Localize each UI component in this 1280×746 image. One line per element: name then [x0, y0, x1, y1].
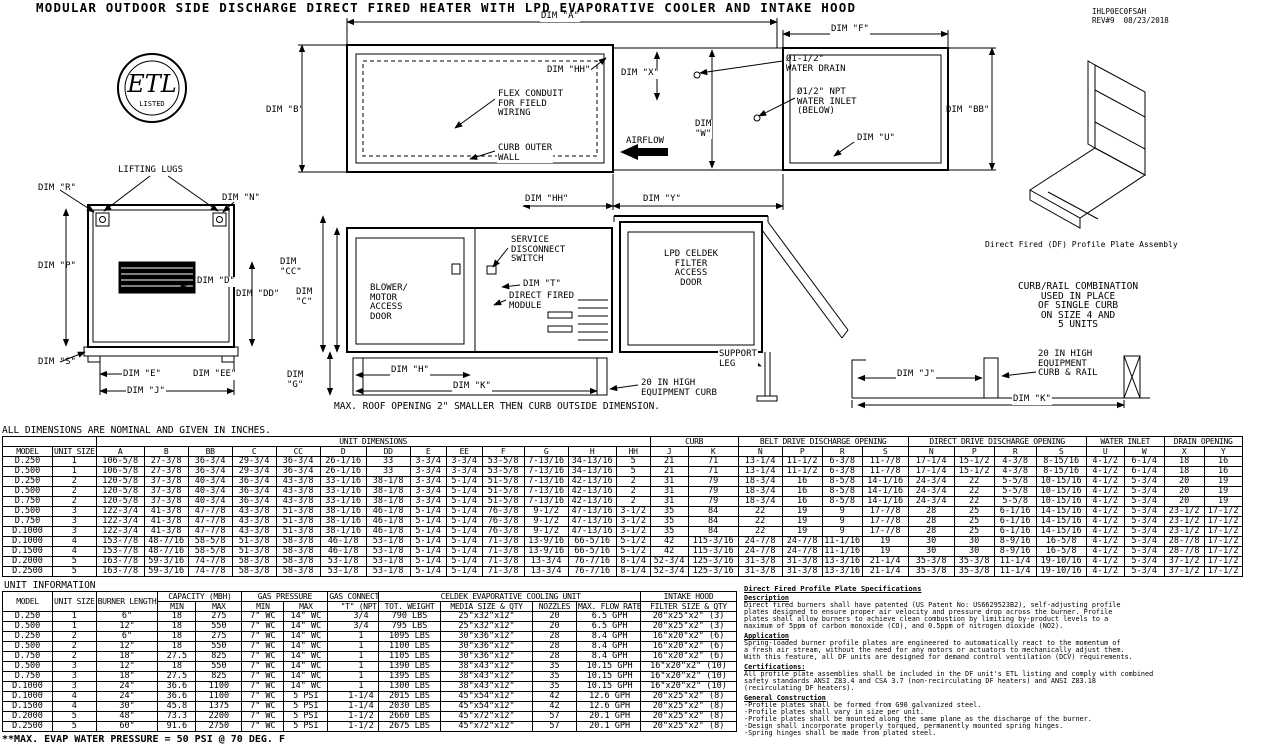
table-row: D.750318"27.58257" WC14" WC1 — [3, 672, 395, 682]
dim-j-label-right: DIM "J" — [896, 370, 936, 380]
table-row: 2660 LBS45"x72"x12"5720.1 GPH — [379, 712, 643, 722]
column-header: C — [232, 447, 276, 457]
column-header: MAX. FLOW RATE — [577, 602, 643, 612]
drawing-sheet: MODULAR OUTDOOR SIDE DISCHARGE DIRECT FI… — [0, 0, 1280, 746]
dim-k-label-mid: DIM "K" — [452, 382, 492, 392]
dim-w-label: DIM "W" — [694, 120, 712, 139]
column-header: CURB — [650, 437, 738, 447]
column-header: MAX — [196, 602, 242, 612]
water-drain-label: Ø1-1/2" WATER DRAIN — [786, 55, 846, 74]
table-row: D.5003122-3/441-3/847-7/843-3/851-3/838-… — [3, 507, 1243, 517]
spec-section-body: Direct fired burners shall have patented… — [744, 602, 1278, 630]
column-header: E — [410, 447, 446, 457]
column-header: G — [524, 447, 568, 457]
column-header: S — [862, 447, 908, 457]
profile-plate-caption: Direct Fired (DF) Profile Plate Assembly — [985, 240, 1178, 250]
table-row: 20"x25"x2" (8) — [641, 712, 737, 722]
table-row: 16"x20"x2" (10) — [641, 682, 737, 692]
dim-dd-label: DIM "DD" — [236, 290, 279, 300]
table-row: D.500212"185507" WC14" WC1 — [3, 642, 395, 652]
dim-y-label: DIM "Y" — [642, 195, 682, 205]
column-header: H — [568, 447, 616, 457]
spec-section-body: All profile plate assemblies shall be in… — [744, 671, 1278, 692]
table-row: 2675 LBS45"x72"x12"5720.1 GPH — [379, 722, 643, 732]
water-inlet-label: Ø1/2" NPT WATER INLET (BELOW) — [797, 88, 857, 117]
dim-n-label: DIM "N" — [222, 194, 260, 204]
lifting-lugs-label: LIFTING LUGS — [118, 166, 183, 176]
column-header: EE — [446, 447, 482, 457]
dim-h-label: DIM "H" — [390, 366, 430, 376]
dim-t-label: DIM "T" — [522, 280, 562, 290]
dim-p-label: DIM "P" — [38, 262, 76, 272]
column-header: P — [782, 447, 822, 457]
table-row: 1300 LBS38"x43"x12"3510.15 GPH — [379, 682, 643, 692]
unit-dimensions-table: UNIT DIMENSIONSCURBBELT DRIVE DISCHARGE … — [2, 436, 1243, 577]
dim-b-label: DIM "B" — [266, 106, 304, 116]
column-header: X — [1164, 447, 1204, 457]
profile-plate-specifications: Direct Fired Profile Plate Specification… — [744, 585, 1278, 737]
spec-section-body: Spring-loaded burner profile plates are … — [744, 640, 1278, 661]
column-header: B — [144, 447, 188, 457]
column-header: K — [688, 447, 738, 457]
table-row: 16"x20"x2" (6) — [641, 642, 737, 652]
celdek-door-label: LPD CELDEK FILTER ACCESS DOOR — [664, 250, 718, 288]
column-header: BB — [188, 447, 232, 457]
flex-conduit-label: FLEX CONDUIT FOR FIELD WIRING — [497, 90, 564, 119]
column-header: U — [1086, 447, 1124, 457]
table-row: 1395 LBS38"x43"x12"3510.15 GPH — [379, 672, 643, 682]
table-row: 16"x20"x2" (6) — [641, 652, 737, 662]
table-row: D.500312"185507" WC14" WC1 — [3, 662, 395, 672]
dim-f-label-top: DIM "F" — [830, 25, 870, 35]
table-row: 2015 LBS45"x54"x12"4212.6 GPH — [379, 692, 643, 702]
column-header: DD — [366, 447, 410, 457]
table-row: 1105 LBS30"x36"x12"288.4 GPH — [379, 652, 643, 662]
table-row: D.7502120-5/837-3/840-3/436-3/443-3/833-… — [3, 497, 1243, 507]
column-header: CC — [276, 447, 320, 457]
dim-r-label: DIM "R" — [38, 184, 76, 194]
table-row: D.5001106-5/827-3/836-3/429-3/436-3/426-… — [3, 467, 1243, 477]
dim-hh-label-mid: DIM "HH" — [524, 195, 569, 205]
dim-hh-label-top: DIM "HH" — [546, 66, 591, 76]
column-header: R — [822, 447, 862, 457]
column-header: MODEL — [3, 447, 53, 457]
max-evap-pressure-footnote: **MAX. EVAP WATER PRESSURE = 50 PSI @ 70… — [2, 734, 285, 745]
column-header: N — [908, 447, 954, 457]
intake-hood-table: INTAKE HOODFILTER SIZE & QTY20"x25"x2" (… — [640, 591, 737, 732]
table-row: D.2501106-5/827-3/836-3/429-3/436-3/426-… — [3, 457, 1243, 467]
table-row: D.20005163-7/859-3/1674-7/858-3/858-3/85… — [3, 557, 1243, 567]
table-row: D.2500560"91.627507" WC5 PSI1-1/2 — [3, 722, 395, 732]
unit-information-table: MODELUNIT SIZEBURNER LENGTHCAPACITY (MBH… — [2, 591, 395, 732]
plan-view-drawing — [298, 18, 996, 210]
column-header: MODEL — [3, 592, 53, 612]
dim-s-label: DIM "S" — [38, 358, 76, 368]
column-header: FILTER SIZE & QTY — [641, 602, 737, 612]
table-row: D.25005163-7/859-3/1674-7/858-3/858-3/85… — [3, 567, 1243, 577]
curb-rail-20-label: 20 IN HIGH EQUIPMENT CURB & RAIL — [1038, 350, 1098, 379]
column-header: S — [1036, 447, 1086, 457]
table-row: D.10004153-7/848-7/1658-5/851-3/858-3/84… — [3, 537, 1243, 547]
etl-listed-mark: ETL LISTED — [118, 54, 186, 122]
specs-title: Direct Fired Profile Plate Specification… — [744, 585, 1278, 592]
table-row: 20"x25"x2" (3) — [641, 622, 737, 632]
column-header — [3, 437, 97, 447]
dim-g-label: DIM "G" — [287, 371, 303, 390]
airflow-label: AIRFLOW — [626, 137, 664, 147]
column-header: W — [1124, 447, 1164, 457]
column-header: WATER INLET — [1086, 437, 1164, 447]
column-header: MAX — [284, 602, 328, 612]
svg-text:ETL: ETL — [126, 70, 176, 98]
table-row: D.1000324"36.611007" WC14" WC1 — [3, 682, 395, 692]
table-row: D.2502120-5/837-3/840-3/436-3/443-3/833-… — [3, 477, 1243, 487]
dim-bb-label: DIM "BB" — [946, 106, 989, 116]
column-header: BURNER LENGTH — [96, 592, 158, 612]
table-row: D.500112"185507" WC14" WC3/4 — [3, 622, 395, 632]
table-row: D.2000548"73.322007" WC5 PSI1-1/2 — [3, 712, 395, 722]
table-row: 16"x20"x2" (10) — [641, 672, 737, 682]
table-row: 20"x25"x2" (8) — [641, 722, 737, 732]
service-disconnect-label: SERVICE DISCONNECT SWITCH — [510, 236, 566, 265]
column-header: A — [96, 447, 144, 457]
column-header: MIN — [242, 602, 284, 612]
column-header: F — [482, 447, 524, 457]
table-row: 20"x25"x2" (8) — [641, 692, 737, 702]
table-row: D.15004153-7/848-7/1658-5/851-3/858-3/84… — [3, 547, 1243, 557]
support-leg-label: SUPPORT LEG — [718, 350, 758, 369]
column-header: J — [650, 447, 688, 457]
column-header: DIRECT DRIVE DISCHARGE OPENING — [908, 437, 1086, 447]
dim-ee-label: DIM "EE" — [192, 370, 237, 380]
table-row: D.1000424"36.611007" WC5 PSI1-1/4 — [3, 692, 395, 702]
table-row: 20"x25"x2" (8) — [641, 702, 737, 712]
table-row: 20"x25"x2" (3) — [641, 612, 737, 622]
dim-x-label: DIM "X" — [620, 69, 660, 79]
column-header: BELT DRIVE DISCHARGE OPENING — [738, 437, 908, 447]
curb-rail-drawing — [852, 356, 1150, 408]
celdek-cooling-table: CELDEK EVAPORATIVE COOLING UNITTOT. WEIG… — [378, 591, 643, 732]
svg-text:LISTED: LISTED — [139, 100, 164, 108]
unit-information-title: UNIT INFORMATION — [4, 580, 96, 591]
column-header: HH — [616, 447, 650, 457]
column-header: MEDIA SIZE & QTY — [441, 602, 533, 612]
column-header: CAPACITY (MBH) — [158, 592, 242, 602]
dim-c-label: DIM "C" — [296, 288, 312, 307]
column-header: UNIT DIMENSIONS — [96, 437, 650, 447]
dim-d-label: DIM "D" — [196, 277, 236, 287]
table-row: 790 LBS25"x32"x12"206.5 GPH — [379, 612, 643, 622]
table-row: D.1500430"45.813757" WC5 PSI1-1/4 — [3, 702, 395, 712]
table-row: D.750218"27.58257" WC14" WC1 — [3, 652, 395, 662]
dim-cc-label: DIM "CC" — [280, 258, 302, 277]
column-header: D — [320, 447, 366, 457]
dim-e-label: DIM "E" — [122, 370, 162, 380]
column-header: TOT. WEIGHT — [379, 602, 441, 612]
profile-plate-assembly-drawing — [1030, 61, 1145, 228]
table-row: D.25026"182757" WC14" WC1 — [3, 632, 395, 642]
dimensions-note: ALL DIMENSIONS ARE NOMINAL AND GIVEN IN … — [2, 425, 271, 436]
column-header: MIN — [158, 602, 196, 612]
column-header: DRAIN OPENING — [1164, 437, 1242, 447]
column-header: R — [994, 447, 1036, 457]
direct-fired-module-label: DIRECT FIRED MODULE — [508, 292, 575, 311]
table-row: D.10003122-3/441-3/847-7/843-3/851-3/838… — [3, 527, 1243, 537]
column-header: P — [954, 447, 994, 457]
dim-a-label: DIM "A" — [540, 12, 580, 22]
dim-k-label-right: DIM "K" — [1012, 395, 1052, 405]
blower-door-label: BLOWER/ MOTOR ACCESS DOOR — [370, 284, 408, 322]
column-header: UNIT SIZE — [53, 592, 97, 612]
column-header: NOZZLES — [533, 602, 577, 612]
column-header: N — [738, 447, 782, 457]
column-header: UNIT SIZE — [53, 447, 97, 457]
table-row: 2030 LBS45"x54"x12"4212.6 GPH — [379, 702, 643, 712]
dim-u-label: DIM "U" — [856, 134, 896, 144]
table-row: D.7503122-3/441-3/847-7/843-3/851-3/838-… — [3, 517, 1243, 527]
spec-section-body: -Profile plates shall be formed from G90… — [744, 702, 1278, 737]
column-header: GAS PRESSURE — [242, 592, 328, 602]
table-row: D.5002120-5/837-3/840-3/436-3/443-3/833-… — [3, 487, 1243, 497]
column-header: CELDEK EVAPORATIVE COOLING UNIT — [379, 592, 643, 602]
table-row: 1100 LBS30"x36"x12"288.4 GPH — [379, 642, 643, 652]
equipment-curb-label: 20 IN HIGH EQUIPMENT CURB — [640, 379, 718, 398]
roof-opening-note: MAX. ROOF OPENING 2" SMALLER THEN CURB O… — [334, 402, 660, 412]
table-row: 16"x20"x2" (10) — [641, 662, 737, 672]
table-row: 16"x20"x2" (6) — [641, 632, 737, 642]
curb-outer-wall-label: CURB OUTER WALL — [497, 144, 553, 163]
table-row: 795 LBS25"x32"x12"206.5 GPH — [379, 622, 643, 632]
column-header: Y — [1204, 447, 1242, 457]
table-row: D.25016"182757" WC14" WC3/4 — [3, 612, 395, 622]
column-header: INTAKE HOOD — [641, 592, 737, 602]
dim-j-label-left: DIM "J" — [126, 387, 166, 397]
curb-rail-note: CURB/RAIL COMBINATION USED IN PLACE OF S… — [1018, 282, 1138, 330]
table-row: 1095 LBS30"x36"x12"288.4 GPH — [379, 632, 643, 642]
table-row: 1390 LBS38"x43"x12"3510.15 GPH — [379, 662, 643, 672]
